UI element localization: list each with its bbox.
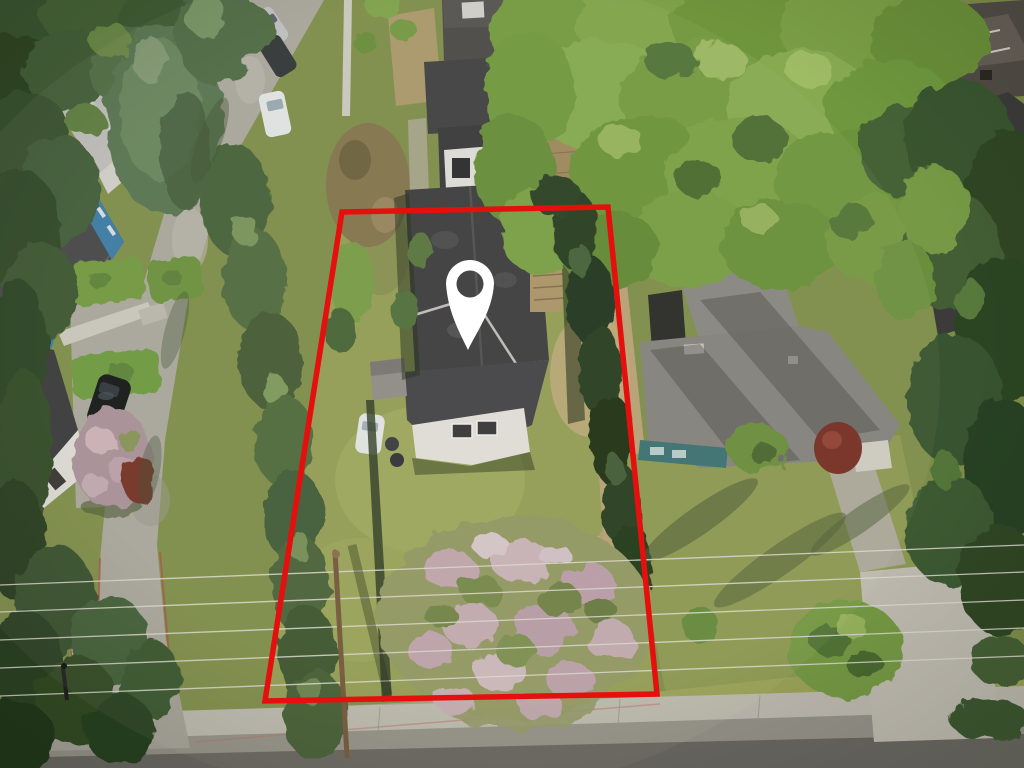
vignette (0, 0, 1024, 768)
aerial-scene (0, 0, 1024, 768)
aerial-photo (0, 0, 1024, 768)
